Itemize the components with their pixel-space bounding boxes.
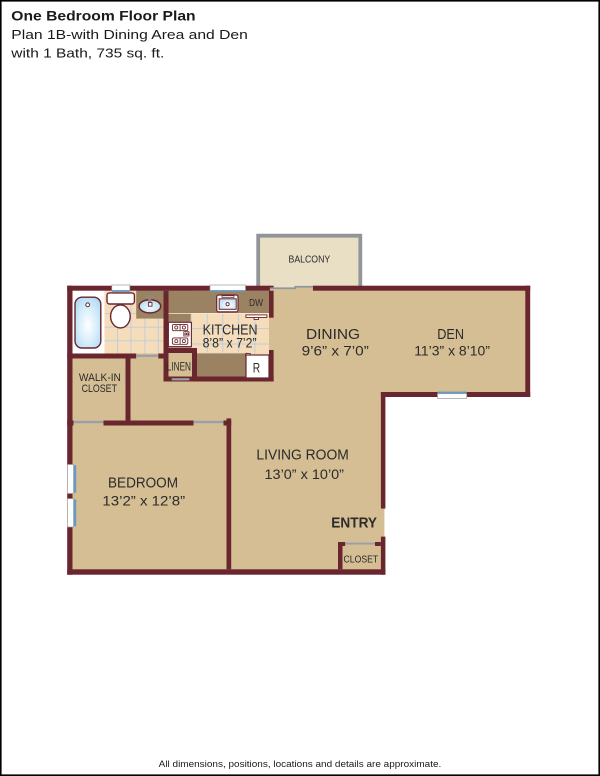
svg-text:11’3” x 8’10”: 11’3” x 8’10” — [414, 343, 490, 359]
svg-text:R: R — [253, 361, 261, 376]
svg-text:CLOSET: CLOSET — [344, 554, 379, 566]
svg-text:LINEN: LINEN — [167, 361, 191, 373]
svg-text:13’0” x 10’0”: 13’0” x 10’0” — [265, 466, 345, 482]
svg-text:BALCONY: BALCONY — [289, 255, 331, 266]
svg-text:13’2” x 12’8”: 13’2” x 12’8” — [102, 493, 185, 509]
svg-text:DEN: DEN — [437, 326, 464, 343]
svg-text:One Bedroom Floor Plan: One Bedroom Floor Plan — [11, 8, 195, 23]
svg-text:CLOSET: CLOSET — [82, 383, 118, 395]
svg-text:ENTRY: ENTRY — [331, 515, 377, 532]
svg-text:with 1 Bath, 735 sq. ft.: with 1 Bath, 735 sq. ft. — [10, 46, 164, 61]
svg-text:BEDROOM: BEDROOM — [108, 476, 178, 492]
svg-text:9’6” x 7’0”: 9’6” x 7’0” — [302, 343, 370, 359]
svg-text:8’8” x 7’2”: 8’8” x 7’2” — [203, 335, 257, 351]
svg-text:LIVING ROOM: LIVING ROOM — [256, 448, 348, 464]
svg-text:Plan 1B-with Dining Area and D: Plan 1B-with Dining Area and Den — [11, 27, 248, 42]
svg-text:DINING: DINING — [306, 326, 360, 343]
svg-text:All dimensions, positions, loc: All dimensions, positions, locations and… — [159, 759, 442, 769]
svg-text:DW: DW — [249, 297, 263, 309]
